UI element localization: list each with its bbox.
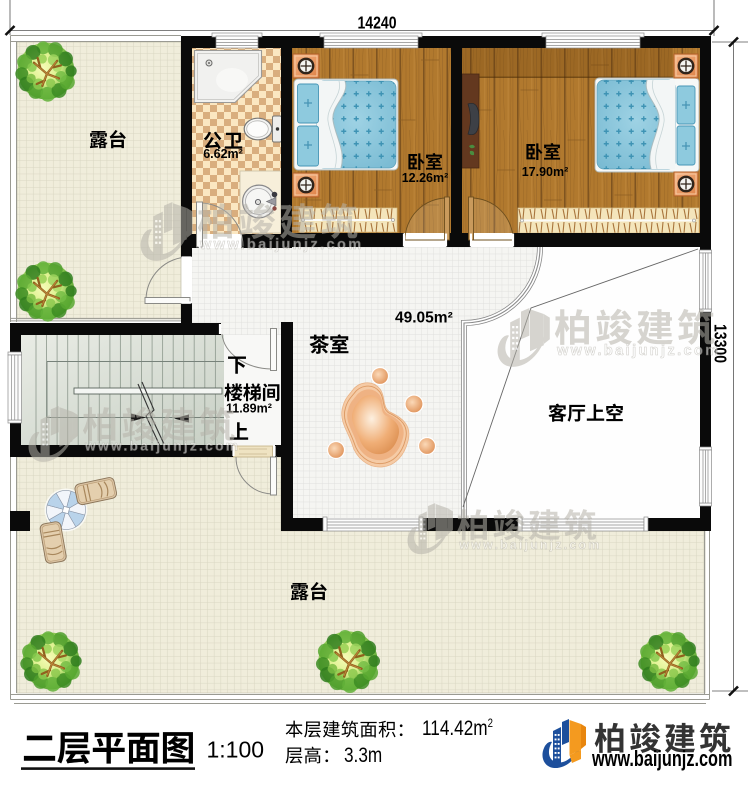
svg-text:1:100: 1:100 — [207, 737, 265, 763]
svg-text:www.baijunjz.com: www.baijunjz.com — [591, 747, 732, 772]
svg-text:17.90m²: 17.90m² — [522, 165, 569, 179]
svg-text:14240: 14240 — [357, 13, 396, 33]
svg-text:6.62m²: 6.62m² — [203, 147, 243, 161]
svg-text:www.baijunjz.com: www.baijunjz.com — [84, 439, 240, 454]
svg-text:3.3m: 3.3m — [344, 743, 382, 767]
svg-text:12.26m²: 12.26m² — [402, 171, 449, 185]
svg-text:114.42m2: 114.42m2 — [422, 716, 493, 740]
svg-text:www.baijunjz.com: www.baijunjz.com — [556, 343, 721, 359]
svg-text:49.05m²: 49.05m² — [395, 310, 453, 327]
svg-text:www.baijunjz.com: www.baijunjz.com — [199, 237, 364, 253]
svg-text:www.baijunjz.com: www.baijunjz.com — [458, 538, 601, 552]
